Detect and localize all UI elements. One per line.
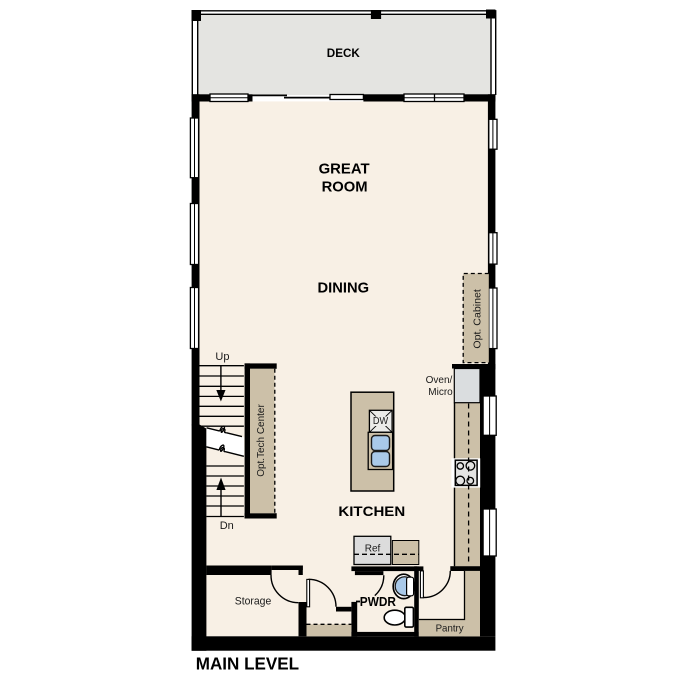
svg-text:Up: Up: [215, 351, 229, 363]
svg-text:Dn: Dn: [220, 520, 234, 532]
svg-text:DW: DW: [373, 415, 388, 427]
svg-text:Ref: Ref: [365, 544, 381, 555]
svg-text:GREAT: GREAT: [319, 160, 370, 177]
svg-text:KITCHEN: KITCHEN: [338, 503, 405, 519]
svg-text:PWDR: PWDR: [360, 595, 396, 609]
svg-text:DECK: DECK: [327, 48, 361, 60]
svg-text:Opt. Cabinet: Opt. Cabinet: [471, 289, 483, 349]
svg-text:DINING: DINING: [318, 279, 370, 296]
svg-text:Pantry: Pantry: [436, 623, 465, 635]
svg-text:Opt.Tech Center: Opt.Tech Center: [255, 404, 267, 477]
svg-text:Micro: Micro: [428, 387, 453, 398]
svg-text:Storage: Storage: [235, 596, 272, 608]
svg-text:ROOM: ROOM: [322, 179, 368, 196]
svg-text:MAIN LEVEL: MAIN LEVEL: [196, 654, 300, 674]
svg-text:Oven/: Oven/: [426, 375, 453, 386]
